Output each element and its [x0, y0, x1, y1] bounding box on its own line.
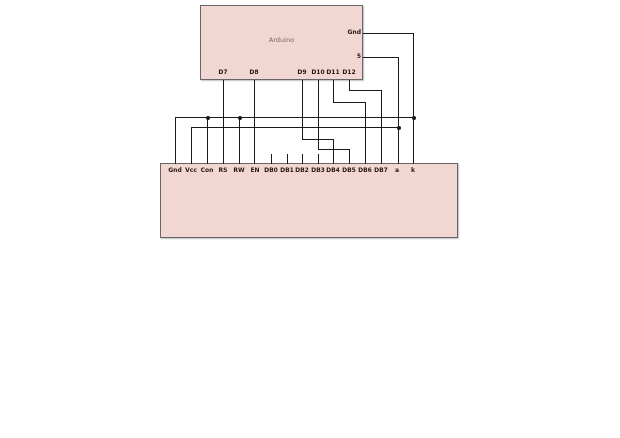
- lcd-pin-label-db3: DB3: [311, 167, 325, 174]
- arduino-pin-label-d8: D8: [249, 69, 258, 76]
- d11-to-db6-wire: [333, 80, 334, 103]
- d9-to-db4-wire: [302, 80, 303, 140]
- d12-to-db7-wire: [349, 90, 382, 91]
- lcd-pin-label-a: a: [395, 167, 399, 174]
- junction-dot: [238, 116, 242, 120]
- arduino-pin-label-gnd: Gnd: [348, 29, 362, 36]
- arduino-pin-label-d12: D12: [342, 69, 355, 76]
- lcd-pin-label-rs: RS: [219, 167, 228, 174]
- arduino-pin-label-d7: D7: [218, 69, 227, 76]
- d7-to-rs-wire: [223, 80, 224, 164]
- con-to-gnd-bus-wire: [207, 117, 208, 164]
- d11-to-db6-wire: [333, 102, 366, 103]
- rw-to-gnd-bus-wire: [239, 117, 240, 164]
- db2-stub-wire: [302, 154, 303, 164]
- arduino-pin-label-d10: D10: [311, 69, 324, 76]
- lcd-pin-label-gnd: Gnd: [168, 167, 182, 174]
- junction-dot: [397, 126, 401, 130]
- d10-to-db5-wire: [318, 80, 319, 150]
- lcd-pin-label-db7: DB7: [374, 167, 388, 174]
- db1-stub-wire: [287, 154, 288, 164]
- lcd-pin-label-db1: DB1: [280, 167, 294, 174]
- lcd-pin-label-db2: DB2: [295, 167, 309, 174]
- arduino-label: Arduino: [269, 36, 294, 44]
- arduino-gnd-to-k-wire: [413, 33, 414, 164]
- arduino-pin-label-5: 5: [357, 53, 361, 60]
- junction-dot: [412, 116, 416, 120]
- lcd-pin-label-db0: DB0: [264, 167, 278, 174]
- d10-to-db5-wire: [318, 149, 350, 150]
- d10-to-db5-wire: [349, 149, 350, 164]
- lcd-pin-label-rw: RW: [233, 167, 244, 174]
- vcc-to-5v-bus-wire: [191, 127, 192, 164]
- lcd-pin-label-en: EN: [250, 167, 259, 174]
- junction-dot: [206, 116, 210, 120]
- d11-to-db6-wire: [365, 102, 366, 164]
- gnd-bus-wire: [175, 117, 414, 118]
- d9-to-db4-wire: [333, 139, 334, 164]
- db0-stub-wire: [271, 154, 272, 164]
- gnd-bus-wire: [175, 117, 176, 164]
- arduino-pin-label-d9: D9: [297, 69, 306, 76]
- diagram-canvas: Arduino D7D8D9D10D11D12Gnd5GndVccConRSRW…: [0, 0, 620, 438]
- d12-to-db7-wire: [381, 90, 382, 164]
- lcd-pin-label-db4: DB4: [326, 167, 340, 174]
- arduino-pin-label-d11: D11: [326, 69, 339, 76]
- db3-stub-wire: [318, 154, 319, 164]
- arduino-gnd-to-k-wire: [363, 33, 414, 34]
- lcd-pin-label-k: k: [411, 167, 415, 174]
- lcd-pin-label-db6: DB6: [358, 167, 372, 174]
- arduino-5v-to-a-wire: [363, 57, 399, 58]
- lcd-pin-label-con: Con: [201, 167, 214, 174]
- lcd-component: [160, 163, 458, 238]
- arduino-5v-to-a-wire: [398, 57, 399, 164]
- lcd-pin-label-db5: DB5: [342, 167, 356, 174]
- lcd-pin-label-vcc: Vcc: [185, 167, 197, 174]
- d8-to-en-wire: [254, 80, 255, 164]
